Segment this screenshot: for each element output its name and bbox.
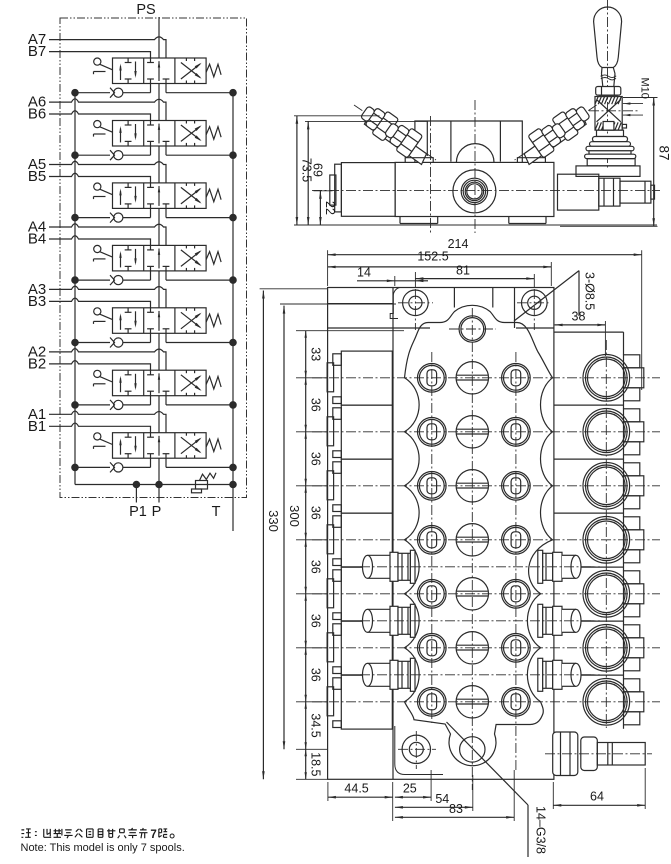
svg-text:83: 83 [449, 802, 463, 816]
svg-text:36: 36 [308, 560, 322, 574]
svg-text:300: 300 [287, 505, 302, 527]
svg-text:18.5: 18.5 [308, 752, 322, 776]
svg-text:81: 81 [456, 264, 470, 278]
svg-text:Note: This model is only 7 spo: Note: This model is only 7 spools. [21, 842, 185, 854]
svg-text:34.5: 34.5 [308, 713, 322, 737]
svg-text:22: 22 [323, 201, 337, 215]
svg-text:T: T [212, 504, 221, 520]
svg-text:87: 87 [657, 145, 671, 160]
svg-text:36: 36 [308, 668, 322, 682]
svg-text:36: 36 [308, 506, 322, 520]
svg-text:M10: M10 [639, 78, 651, 99]
svg-text:B6: B6 [28, 106, 46, 123]
svg-text:69: 69 [311, 163, 325, 177]
svg-text:PS: PS [136, 2, 155, 18]
svg-text:54: 54 [435, 792, 449, 806]
svg-text:3-Ø8.5: 3-Ø8.5 [583, 272, 597, 310]
svg-text:B4: B4 [28, 231, 46, 248]
svg-text:25: 25 [403, 782, 417, 796]
svg-text:7: 7 [150, 829, 156, 841]
svg-text:44.5: 44.5 [344, 782, 368, 796]
svg-text:36: 36 [308, 614, 322, 628]
svg-text:14–G3/8: 14–G3/8 [534, 806, 548, 854]
svg-text:P1: P1 [129, 504, 147, 520]
svg-text:B5: B5 [28, 168, 46, 185]
svg-text:14: 14 [357, 266, 371, 280]
svg-text:36: 36 [308, 452, 322, 466]
svg-text:36: 36 [308, 398, 322, 412]
svg-text:33: 33 [308, 347, 322, 361]
svg-text:B3: B3 [28, 293, 46, 310]
svg-text:B7: B7 [28, 43, 46, 60]
svg-text:214: 214 [448, 237, 469, 251]
svg-text:64: 64 [590, 789, 604, 803]
svg-text:P: P [152, 504, 162, 520]
svg-text:152.5: 152.5 [417, 250, 448, 264]
svg-text:B2: B2 [28, 355, 46, 372]
svg-text:330: 330 [266, 510, 281, 532]
svg-text:B1: B1 [28, 418, 46, 435]
